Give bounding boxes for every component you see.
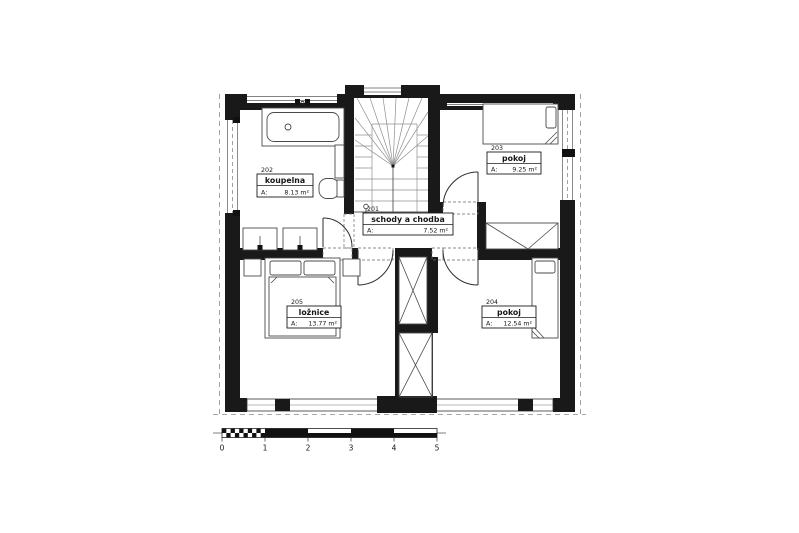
room-area-label: A: [486, 321, 492, 328]
room-number: 205 [291, 299, 303, 306]
room-number: 202 [261, 167, 273, 174]
window-left [225, 117, 240, 216]
room-area-value: 8.13 m² [284, 190, 309, 197]
scale-tick-label: 3 [349, 444, 354, 453]
radiator-icon [335, 145, 344, 178]
scale-tick-label: 4 [392, 444, 397, 453]
room-area-value: 7.52 m² [423, 228, 448, 235]
bed-single-203-icon [483, 104, 558, 144]
toilet-icon [319, 179, 344, 199]
window-right [560, 110, 575, 200]
closet-shaft-walls [395, 248, 438, 398]
scale-tick-label: 5 [435, 444, 440, 453]
closet-top-icon [399, 257, 427, 324]
wall-stairs-room203 [428, 85, 440, 214]
room-area-value: 12.54 m² [503, 321, 532, 328]
wall-room203-south [428, 202, 443, 214]
staircase [354, 98, 428, 213]
room-area-label: A: [261, 190, 267, 197]
nightstand-left-icon [244, 259, 261, 276]
bottom-wall-post [275, 399, 290, 411]
room-name: ložnice [299, 308, 330, 317]
scale-tick-label: 2 [306, 444, 311, 453]
scale-tick-label: 1 [263, 444, 268, 453]
nightstand-right-icon [343, 259, 360, 276]
room-name: schody a chodba [371, 215, 444, 224]
room-area-value: 9.25 m² [512, 167, 537, 174]
door-bathroom [323, 218, 352, 247]
wall-bathroom-stairs [344, 94, 354, 214]
window-stair-bay [364, 85, 401, 95]
closet-bottom-icon [399, 333, 432, 397]
room-name: pokoj [502, 154, 526, 163]
floor-plan-page: { "plan": { "type": "floor-plan", "color… [0, 0, 799, 533]
window-top-bathroom [247, 94, 337, 103]
room-label-203: 203 pokoj A: 9.25 m² [487, 145, 541, 174]
scale-tick-labels: 0 1 2 3 4 5 [220, 444, 440, 453]
scale-tick-label: 0 [220, 444, 225, 453]
room-area-label: A: [367, 228, 373, 235]
room-area-label: A: [291, 321, 297, 328]
room203-furniture [483, 104, 558, 249]
room-label-202: 202 koupelna A: 8.13 m² [257, 167, 313, 197]
room-number: 204 [486, 299, 498, 306]
washbasin-left-icon [243, 228, 277, 250]
scale-tick-marks [222, 438, 437, 442]
room-area-value: 13.77 m² [308, 321, 337, 328]
washbasin-right-icon [283, 228, 317, 250]
room-name: koupelna [265, 176, 305, 185]
stair-newel-post [392, 165, 395, 168]
door-room205 [358, 250, 393, 285]
divider-wall-east [478, 248, 575, 260]
room-number: 201 [367, 206, 379, 213]
room-name: pokoj [497, 308, 521, 317]
bottom-wall [225, 396, 575, 413]
wardrobe-203-icon [486, 223, 558, 249]
room-area-label: A: [491, 167, 497, 174]
scale-bar: 0 1 2 3 4 5 [213, 429, 446, 453]
door-room204 [443, 250, 478, 285]
floor-plan-canvas: 201 schody a chodba A: 7.52 m² 202 koupe… [0, 0, 799, 533]
room-label-204: 204 pokoj A: 12.54 m² [482, 299, 536, 328]
bottom-wall-center-block [377, 396, 437, 413]
bathtub-icon [262, 108, 344, 146]
divider-wall-jamb [352, 248, 358, 260]
bottom-wall-post [518, 399, 533, 411]
room-number: 203 [491, 145, 503, 152]
